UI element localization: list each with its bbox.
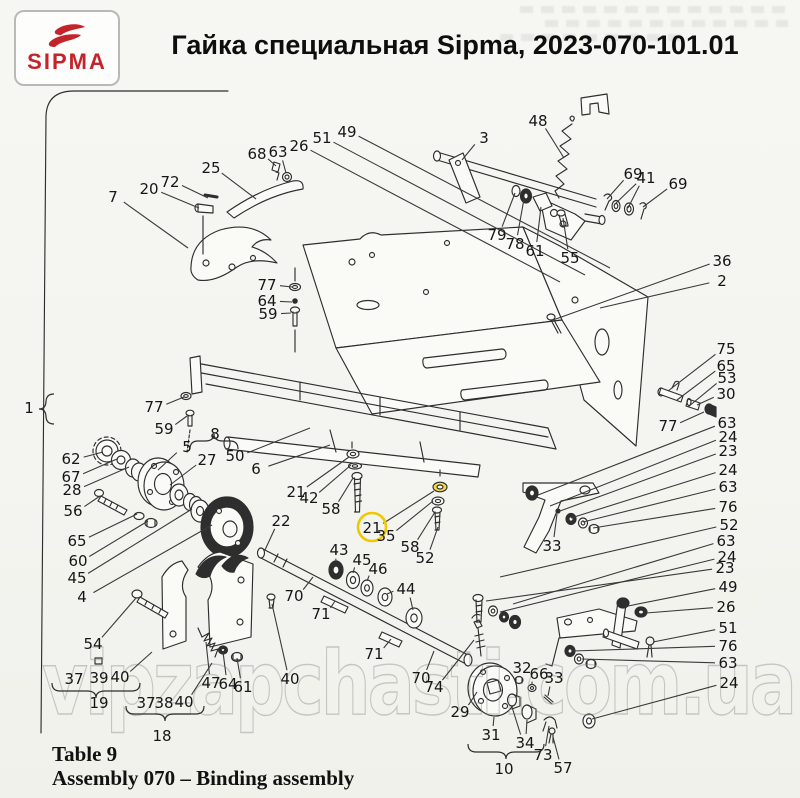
svg-text:37: 37 [136,694,155,712]
svg-text:51: 51 [312,129,331,147]
svg-text:49: 49 [718,578,737,596]
svg-text:58: 58 [321,500,340,518]
part-label-63: 63 [583,478,738,522]
part-label-78: 78 [505,199,524,253]
svg-text:63: 63 [718,654,737,672]
svg-text:77: 77 [144,398,163,416]
part-label-77: 77 [144,397,184,416]
part-label-3: 3 [462,129,489,160]
svg-text:57: 57 [553,759,572,777]
part-label-23: 23 [486,559,735,601]
part-label-56: 56 [63,496,100,520]
svg-text:2: 2 [717,272,727,290]
svg-text:44: 44 [396,580,415,598]
special-nut-stack [432,470,447,530]
svg-text:51: 51 [718,619,737,637]
svg-text:3: 3 [479,129,489,147]
svg-text:71: 71 [311,605,330,623]
svg-text:25: 25 [201,159,220,177]
part-label-10: 10 [494,760,513,778]
svg-text:76: 76 [718,498,737,516]
part-label-1: 1 [24,399,34,417]
part-label-26: 26 [646,598,736,616]
part-label-77: 77 [658,412,704,435]
svg-text:33: 33 [544,669,563,687]
svg-text:75: 75 [716,340,735,358]
svg-text:74: 74 [424,678,443,696]
svg-text:6: 6 [251,460,261,478]
svg-text:59: 59 [258,305,277,323]
svg-text:22: 22 [271,512,290,530]
part-label-48: 48 [528,112,564,158]
part-label-37: 37 [64,670,83,688]
svg-text:29: 29 [450,703,469,721]
right-pin-cluster [658,381,716,417]
svg-text:24: 24 [719,674,738,692]
part-label-21: 21 [358,491,434,541]
svg-text:1: 1 [24,399,34,417]
svg-text:61: 61 [233,678,252,696]
svg-text:38: 38 [154,694,173,712]
svg-text:49: 49 [337,123,356,141]
part-label-43: 43 [329,541,348,562]
svg-text:77: 77 [658,417,677,435]
svg-text:60: 60 [68,552,87,570]
svg-text:10: 10 [494,760,513,778]
svg-text:41: 41 [636,169,655,187]
svg-text:55: 55 [560,249,579,267]
part-label-18: 18 [152,727,171,745]
svg-text:63: 63 [718,478,737,496]
svg-text:30: 30 [716,385,735,403]
svg-text:46: 46 [368,560,387,578]
part-label-19: 19 [89,694,108,712]
part-label-39: 39 [89,669,108,687]
svg-text:71: 71 [364,645,383,663]
svg-text:43: 43 [329,541,348,559]
svg-text:50: 50 [225,447,244,465]
svg-text:23: 23 [718,442,737,460]
part-label-22: 22 [265,512,291,550]
svg-text:40: 40 [110,668,129,686]
part-label-24: 24 [550,428,738,506]
svg-text:26: 26 [289,137,308,155]
svg-text:42: 42 [299,489,318,507]
svg-text:78: 78 [505,235,524,253]
svg-text:33: 33 [542,537,561,555]
parts-diagram-canvas: vipzapchasti.com.ua 72072256863265149483… [0,0,800,798]
brace-1 [39,394,54,424]
svg-text:37: 37 [64,670,83,688]
svg-text:76: 76 [718,637,737,655]
svg-text:27: 27 [197,451,216,469]
svg-text:18: 18 [152,727,171,745]
part-label-38: 38 [154,694,173,712]
svg-text:23: 23 [715,559,734,577]
svg-text:19: 19 [89,694,108,712]
svg-text:72: 72 [160,173,179,191]
svg-text:26: 26 [716,598,735,616]
svg-text:63: 63 [268,143,287,161]
svg-text:24: 24 [718,461,737,479]
svg-text:20: 20 [139,180,158,198]
svg-text:40: 40 [174,693,193,711]
svg-text:56: 56 [63,502,82,520]
svg-text:52: 52 [415,549,434,567]
svg-text:39: 39 [89,669,108,687]
svg-text:59: 59 [154,420,173,438]
svg-text:40: 40 [280,670,299,688]
part-label-25: 25 [201,159,256,199]
svg-text:36: 36 [712,252,731,270]
assembly-caption: Assembly 070 – Binding assembly [52,766,354,791]
part-label-37: 37 [136,694,155,712]
blade-guard-part [191,162,303,280]
part-label-4: 4 [77,525,212,606]
svg-text:65: 65 [67,532,86,550]
part-label-57: 57 [553,737,573,777]
svg-text:45: 45 [67,569,86,587]
svg-text:79: 79 [487,226,506,244]
svg-text:48: 48 [528,112,547,130]
svg-text:4: 4 [77,588,87,606]
svg-text:68: 68 [247,145,266,163]
page: SIPMA Гайка специальная Sipma, 2023-070-… [0,0,800,798]
svg-text:69: 69 [668,175,687,193]
part-label-70: 70 [284,577,313,605]
svg-text:34: 34 [515,734,534,752]
svg-text:28: 28 [62,481,81,499]
svg-text:31: 31 [481,726,500,744]
svg-text:70: 70 [284,587,303,605]
part-label-59: 59 [154,416,187,438]
part-label-46: 46 [367,560,388,581]
part-label-59: 59 [258,305,291,323]
svg-text:54: 54 [83,635,102,653]
frame-bolt-stack-top [290,268,301,352]
svg-text:35: 35 [376,527,395,545]
svg-text:61: 61 [525,242,544,260]
part-label-58: 58 [321,478,353,518]
table-caption: Table 9 [52,742,117,767]
svg-text:7: 7 [108,188,118,206]
svg-text:62: 62 [61,450,80,468]
part-label-76: 76 [593,498,738,528]
